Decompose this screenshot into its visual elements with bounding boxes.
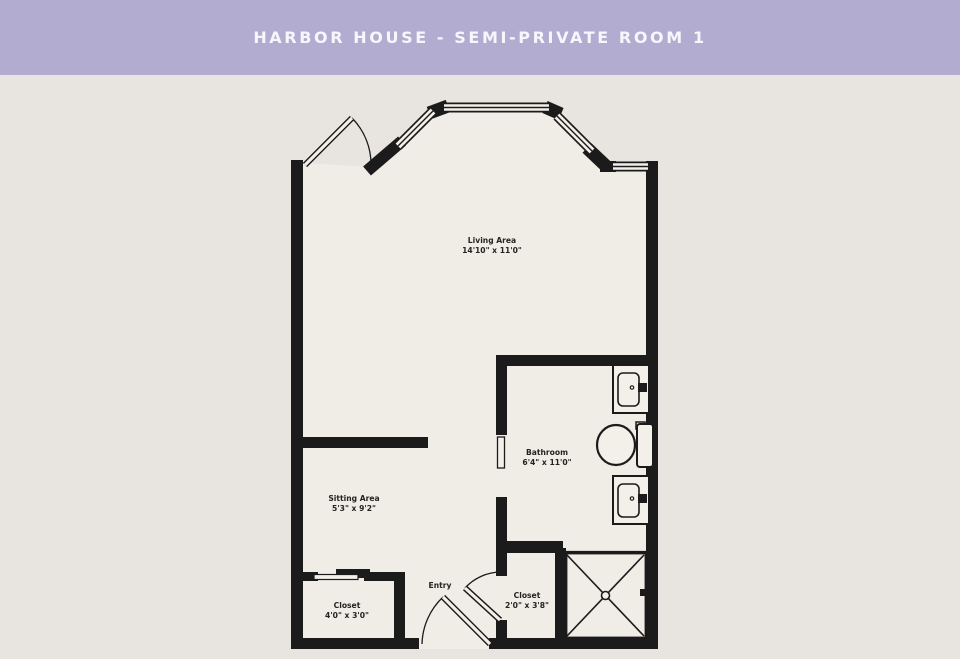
bathroom-door-icon xyxy=(498,437,505,468)
living-area-label: Living Area xyxy=(468,236,516,245)
sitting-area-label: Sitting Area xyxy=(328,494,379,503)
closet1-label: Closet xyxy=(334,601,361,610)
sink-bottom-icon xyxy=(613,476,649,524)
shower-icon xyxy=(566,552,648,638)
sink-top-icon xyxy=(613,365,649,413)
patio-door-icon xyxy=(305,118,371,166)
closet2-label: Closet xyxy=(514,591,541,600)
closet2-dims: 2'0" x 3'8" xyxy=(505,601,549,610)
closet1-sliding-door-icon xyxy=(314,575,358,580)
entry-label: Entry xyxy=(429,581,452,590)
bathroom-label: Bathroom xyxy=(526,448,568,457)
floor-plan: Living Area 14'10" x 11'0" Bathroom 6'4"… xyxy=(0,0,960,659)
bathroom-dims: 6'4" x 11'0" xyxy=(522,458,571,467)
closet1-dims: 4'0" x 3'0" xyxy=(325,611,369,620)
sitting-area-dims: 5'3" x 9'2" xyxy=(332,504,376,513)
toilet-icon xyxy=(597,422,653,467)
living-area-dims: 14'10" x 11'0" xyxy=(462,246,522,255)
